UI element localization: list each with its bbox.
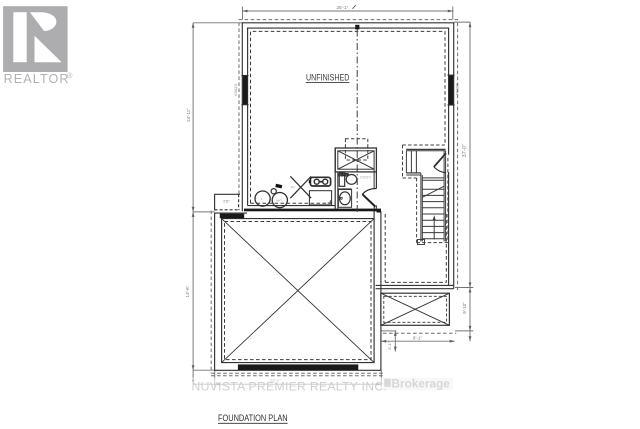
svg-text:®: ® <box>67 72 73 80</box>
svg-text:F: F <box>261 197 263 201</box>
svg-text:2'6X5'0: 2'6X5'0 <box>360 176 371 180</box>
svg-text:FD: FD <box>291 186 296 190</box>
svg-text:5'-1": 5'-1" <box>387 341 392 350</box>
svg-text:REALTOR: REALTOR <box>4 72 70 86</box>
svg-text:14'-6": 14'-6" <box>185 285 190 297</box>
svg-text:2'6": 2'6" <box>223 199 230 204</box>
svg-text:UNFINISHED: UNFINISHED <box>306 72 349 82</box>
svg-text:NUVISTA PREMIER REALTY INC.: NUVISTA PREMIER REALTY INC. <box>192 379 388 393</box>
svg-text:FOUNDATION PLAN: FOUNDATION PLAN <box>218 413 288 423</box>
svg-text:9'-1": 9'-1" <box>413 335 423 340</box>
svg-text:37'-0": 37'-0" <box>462 144 468 157</box>
svg-text:Brokerage: Brokerage <box>392 377 451 391</box>
svg-text:24'-11": 24'-11" <box>186 108 191 122</box>
svg-text:4'0X2'0: 4'0X2'0 <box>234 84 238 96</box>
svg-text:HWT: HWT <box>276 198 282 202</box>
svg-text:9'-10": 9'-10" <box>462 302 467 314</box>
svg-text:28'-1": 28'-1" <box>337 5 349 10</box>
